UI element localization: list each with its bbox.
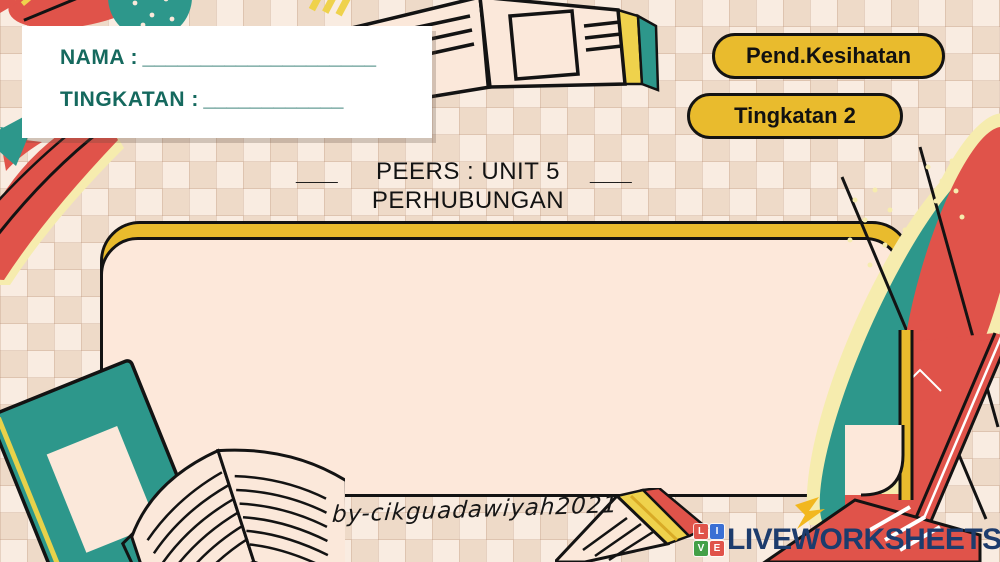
red-wedge <box>0 0 48 13</box>
logo-tile-v: V <box>694 541 708 556</box>
class-blank-line[interactable]: ____________ <box>203 88 343 111</box>
title-line-2: PERHUBUNGAN <box>288 186 648 215</box>
logo-tile-e: E <box>710 541 724 556</box>
subject-badge: Pend.Kesihatan <box>712 33 945 79</box>
panel-corner <box>845 425 915 500</box>
logo-tile-l: L <box>694 524 708 539</box>
form-badge: Tingkatan 2 <box>687 93 903 139</box>
class-label: TINGKATAN : <box>60 88 199 111</box>
name-blank-line[interactable]: ____________________ <box>143 46 377 69</box>
title-right-dash: ___ <box>590 158 632 187</box>
liveworksheets-grid-icon: L I V E <box>694 524 724 556</box>
liveworksheets-wordmark: LIVEWORKSHEETS <box>727 523 1000 557</box>
answer-panel-body <box>100 237 903 497</box>
author-credit: by-cikguadawiyah2021 <box>331 492 619 528</box>
liveworksheets-logo[interactable]: L I V E LIVEWORKSHEETS <box>694 523 1000 557</box>
worksheet-page: NAMA : ____________________ TINGKATAN : … <box>0 0 1000 562</box>
name-label: NAMA : <box>60 46 138 69</box>
name-box: NAMA : ____________________ TINGKATAN : … <box>22 26 432 138</box>
answer-panel <box>100 221 912 497</box>
logo-tile-i: I <box>710 524 724 539</box>
